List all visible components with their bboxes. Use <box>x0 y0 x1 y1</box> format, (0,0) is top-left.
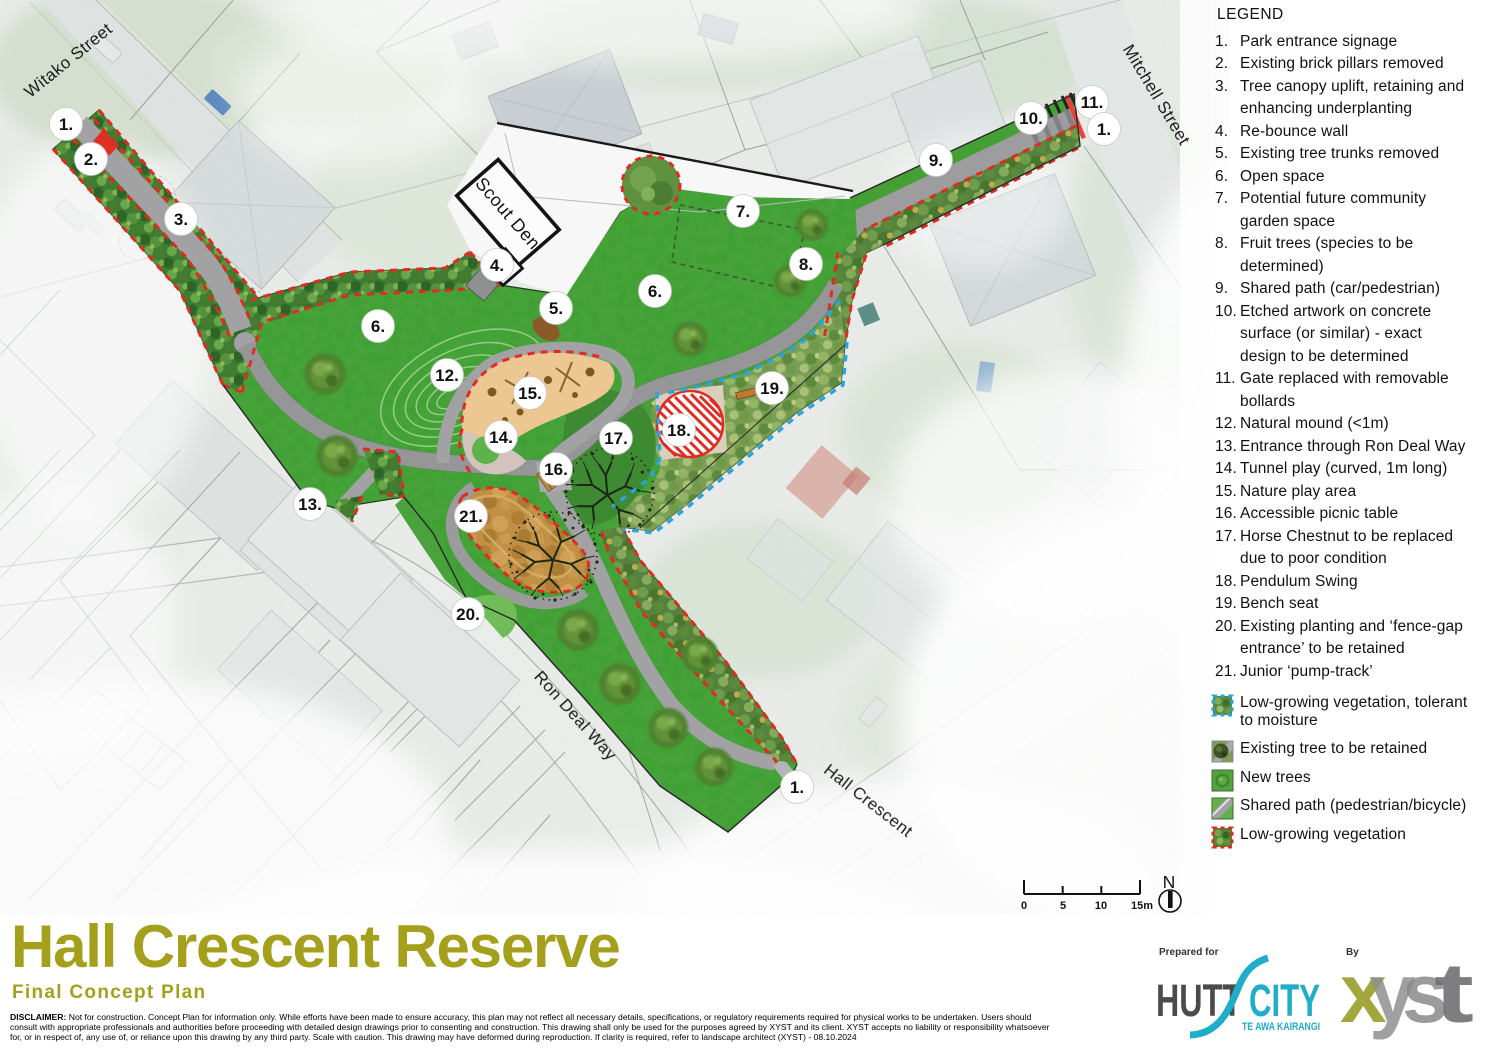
svg-text:1.: 1. <box>790 778 804 797</box>
svg-text:3.: 3. <box>174 210 188 229</box>
svg-text:10.: 10. <box>1019 109 1043 128</box>
svg-text:1.: 1. <box>59 115 73 134</box>
svg-text:20.: 20. <box>456 605 480 624</box>
svg-text:16.: 16. <box>544 460 568 479</box>
svg-text:17.: 17. <box>604 429 628 448</box>
svg-text:N: N <box>1163 872 1176 892</box>
svg-text:13.: 13. <box>298 495 322 514</box>
svg-text:19.: 19. <box>760 379 784 398</box>
svg-text:4.: 4. <box>490 256 504 275</box>
svg-text:1.: 1. <box>1097 120 1111 139</box>
svg-text:12.: 12. <box>435 366 459 385</box>
svg-text:9.: 9. <box>929 151 943 170</box>
svg-text:15m: 15m <box>1131 900 1153 912</box>
svg-text:t: t <box>1434 946 1474 1040</box>
svg-text:8.: 8. <box>799 255 813 274</box>
svg-text:11.: 11. <box>1081 93 1104 112</box>
svg-text:6.: 6. <box>371 317 385 336</box>
svg-text:5: 5 <box>1060 900 1066 912</box>
svg-text:21.: 21. <box>459 507 483 526</box>
svg-text:15.: 15. <box>518 384 542 403</box>
svg-text:14.: 14. <box>489 428 513 447</box>
svg-text:10: 10 <box>1095 900 1107 912</box>
svg-text:0: 0 <box>1021 900 1027 912</box>
svg-text:6.: 6. <box>648 282 662 301</box>
svg-text:7.: 7. <box>736 202 750 221</box>
svg-text:5.: 5. <box>549 299 563 318</box>
svg-text:18.: 18. <box>667 421 691 440</box>
svg-text:2.: 2. <box>84 150 98 169</box>
